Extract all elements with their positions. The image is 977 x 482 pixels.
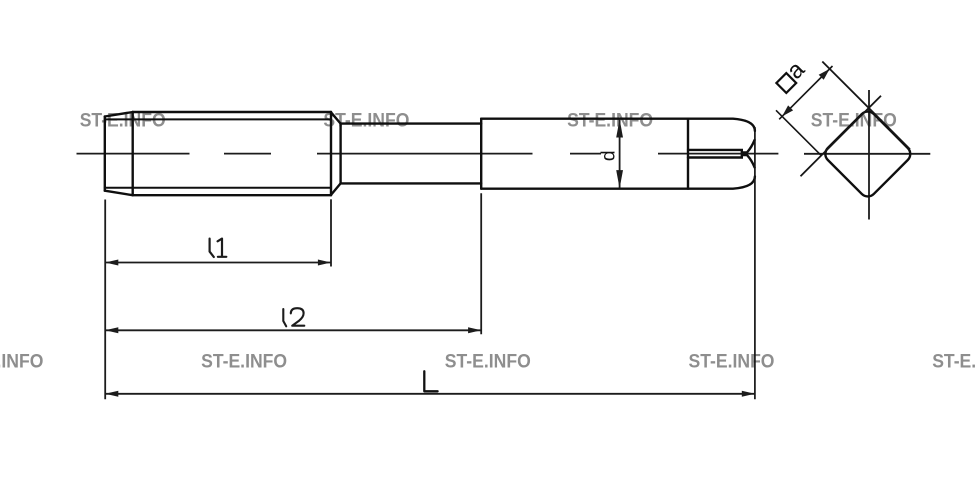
- svg-text:ST-E.INFO: ST-E.INFO: [445, 352, 531, 373]
- svg-text:ST-E.INFO: ST-E.INFO: [932, 352, 977, 373]
- svg-text:ST-E.INFO: ST-E.INFO: [323, 110, 409, 131]
- svg-text:d: d: [598, 150, 620, 161]
- svg-text:ST-E.INFO: ST-E.INFO: [0, 352, 43, 373]
- svg-text:ST-E.INFO: ST-E.INFO: [567, 110, 653, 131]
- svg-text:ST-E.INFO: ST-E.INFO: [689, 352, 775, 373]
- svg-text:ST-E.INFO: ST-E.INFO: [201, 352, 287, 373]
